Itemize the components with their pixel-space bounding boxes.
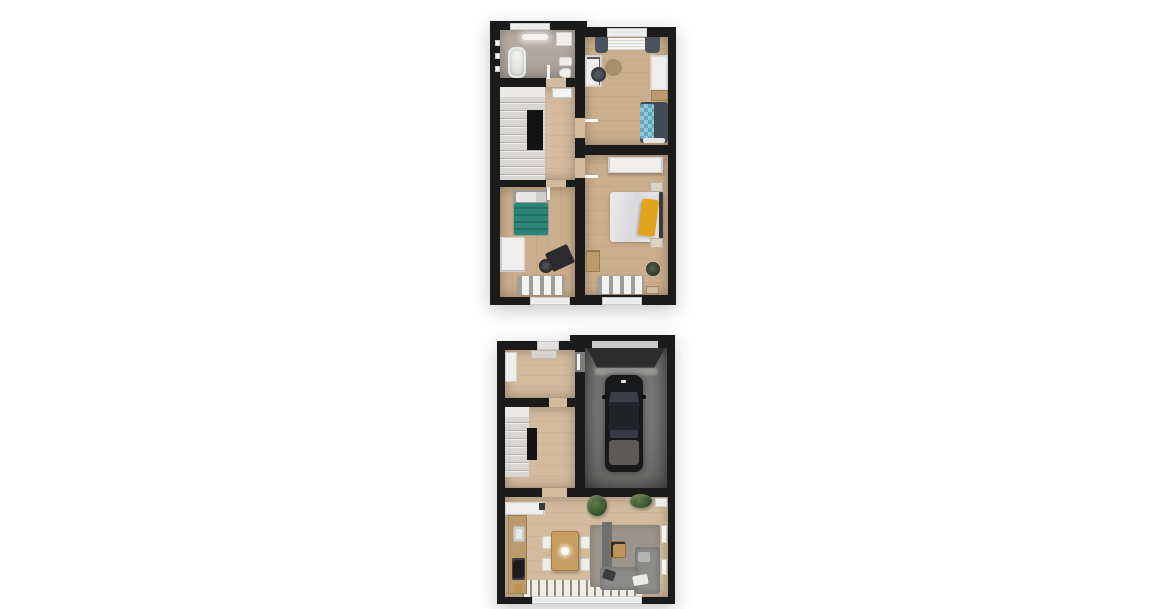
dresser xyxy=(651,90,668,101)
toilet xyxy=(559,68,571,78)
bathroom-door-opening xyxy=(546,78,566,87)
wardrobe xyxy=(650,55,668,91)
bedroom-checkered-window xyxy=(607,28,647,37)
bedroom-teal-door-leaf xyxy=(547,187,550,200)
car-roof xyxy=(609,402,639,430)
cushion-gray xyxy=(638,552,650,562)
stairs-living-opening xyxy=(542,488,567,497)
room-kitchen-living xyxy=(505,497,668,597)
car-windshield xyxy=(609,392,639,402)
checkered-blanket xyxy=(640,104,654,139)
bed-pillow xyxy=(643,138,665,143)
room-bedroom-checkered xyxy=(585,37,668,145)
window-blinds xyxy=(607,38,647,50)
bedroom-checkered-door-opening xyxy=(575,118,585,138)
upper-floor-plan xyxy=(490,21,678,305)
round-rug xyxy=(605,59,622,76)
potted-plant xyxy=(646,262,660,276)
ground-floor-plan xyxy=(497,335,678,604)
teal-duvet xyxy=(514,203,548,235)
bed-blue-checkered xyxy=(640,102,668,143)
vanity-cabinet xyxy=(556,32,572,46)
kitchen-sink xyxy=(513,526,525,542)
curtain-right xyxy=(645,37,660,53)
car xyxy=(605,375,643,472)
wardrobe xyxy=(608,157,663,173)
bathtub xyxy=(508,47,526,78)
hanging-plant xyxy=(587,495,607,516)
nightstand-top xyxy=(650,182,663,192)
radiator-knob xyxy=(495,40,500,46)
stairwell-void xyxy=(527,110,543,150)
bedroom-checkered-door-leaf xyxy=(585,119,598,122)
radiator-knob xyxy=(495,53,500,59)
kitchen-counter xyxy=(508,515,527,594)
stair-top-landing xyxy=(500,87,545,97)
garage-door-leaf xyxy=(577,354,580,370)
garage-door-sill xyxy=(592,341,658,348)
room-staircase-hall xyxy=(505,407,575,488)
office-chair xyxy=(591,67,606,82)
wall-cabinet xyxy=(655,498,667,507)
room-garage xyxy=(585,348,667,488)
stairs xyxy=(505,407,529,477)
dining-chair xyxy=(580,536,590,549)
cooktop xyxy=(512,558,525,580)
sink xyxy=(559,57,572,66)
radiator xyxy=(661,559,667,575)
bathroom-door-leaf xyxy=(547,65,550,79)
hall-stairs-opening xyxy=(549,398,567,407)
wardrobe xyxy=(500,237,525,272)
car-rear-window xyxy=(610,430,638,438)
hanging-plant xyxy=(630,494,652,508)
front-door xyxy=(537,341,559,350)
ceiling-light xyxy=(522,34,548,40)
car-mirror-left xyxy=(602,395,607,399)
nightstand-bottom xyxy=(650,238,663,248)
master-bedroom-window xyxy=(602,297,642,305)
double-bed xyxy=(610,192,663,242)
stair-top-landing xyxy=(505,407,529,417)
striped-rug xyxy=(518,276,564,295)
bedroom-teal-window xyxy=(530,297,570,305)
radiator xyxy=(661,525,667,543)
car-logo xyxy=(621,380,626,383)
dining-chair xyxy=(580,558,590,571)
floor-plan-canvas: { "image_type": "3d-floor-plan-rendering… xyxy=(0,0,1169,609)
hall-closet xyxy=(505,352,517,382)
dresser xyxy=(586,250,600,272)
garage-door-light-band xyxy=(595,368,657,375)
radiator-knob xyxy=(495,66,500,72)
car-trunk-cover xyxy=(609,440,639,465)
stair-wall xyxy=(527,428,537,460)
room-bedroom-teal xyxy=(500,187,575,297)
bathroom-window xyxy=(510,23,550,30)
headboard xyxy=(659,192,663,242)
bedroom-teal-door-opening xyxy=(546,180,566,187)
office-chair xyxy=(539,259,553,273)
master-bedroom-door-opening xyxy=(575,158,585,178)
single-bed-teal xyxy=(513,190,549,236)
kitchen-appliance xyxy=(539,503,545,510)
coffee-table xyxy=(610,541,626,558)
radiator xyxy=(552,88,572,98)
kitchen-stool xyxy=(514,584,523,593)
room-entrance-hall xyxy=(505,350,575,398)
room-bathroom xyxy=(500,30,575,78)
curtain-left xyxy=(595,37,608,53)
pendant-light xyxy=(561,547,569,555)
room-landing xyxy=(500,87,575,180)
doormat xyxy=(531,350,557,359)
garage-door-shadow xyxy=(587,348,665,368)
doormat xyxy=(646,286,659,294)
master-bedroom-door-leaf xyxy=(585,175,598,178)
striped-rug xyxy=(598,276,643,294)
terrace-sliding-door xyxy=(532,596,642,604)
bed-pillows xyxy=(516,192,546,202)
car-mirror-right xyxy=(641,395,646,399)
